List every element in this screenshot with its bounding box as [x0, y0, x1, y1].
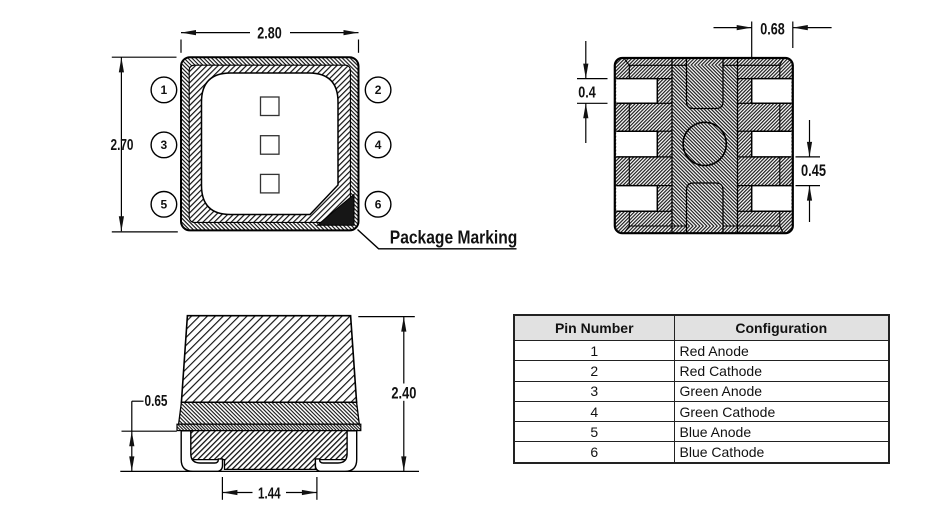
svg-text:3: 3	[161, 138, 168, 152]
svg-text:Package Marking: Package Marking	[390, 228, 518, 248]
svg-text:1.44: 1.44	[258, 485, 281, 502]
svg-text:0.68: 0.68	[760, 21, 785, 39]
svg-text:6: 6	[375, 198, 382, 212]
svg-text:4: 4	[375, 138, 382, 152]
svg-text:0.4: 0.4	[578, 84, 596, 101]
svg-text:2.70: 2.70	[111, 137, 134, 154]
svg-text:0.65: 0.65	[145, 393, 168, 410]
svg-text:1: 1	[161, 83, 168, 97]
svg-text:2.80: 2.80	[257, 24, 282, 42]
svg-text:2: 2	[375, 83, 382, 97]
svg-text:2.40: 2.40	[391, 384, 416, 402]
svg-text:0.45: 0.45	[801, 162, 826, 180]
svg-text:5: 5	[161, 198, 168, 212]
